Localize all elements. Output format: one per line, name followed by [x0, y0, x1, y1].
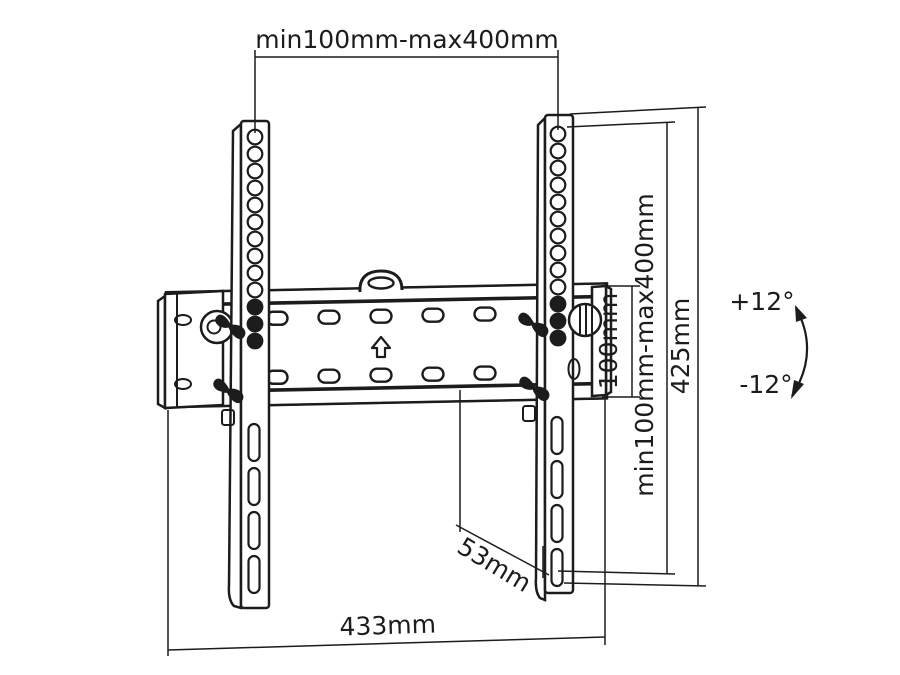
left-end-cap: [158, 291, 223, 408]
label-plate-height: 100mm: [594, 293, 623, 389]
label-vesa-vertical: min100mm-max400mm: [630, 193, 659, 496]
label-bracket-height: 425mm: [666, 298, 695, 394]
left-vertical-bracket: [229, 121, 269, 608]
technical-drawing-canvas: min100mm-max400mm 425mm min100mm-max400m…: [0, 0, 900, 675]
bubble-level-icon: [360, 271, 402, 292]
label-top-span: min100mm-max400mm: [255, 25, 558, 54]
label-total-width: 433mm: [339, 609, 436, 641]
label-tilt-down: -12°: [739, 370, 792, 399]
label-tilt-up: +12°: [729, 287, 794, 316]
tv-mount-diagram: min100mm-max400mm 425mm min100mm-max400m…: [0, 0, 900, 675]
right-vertical-bracket: [536, 115, 573, 600]
